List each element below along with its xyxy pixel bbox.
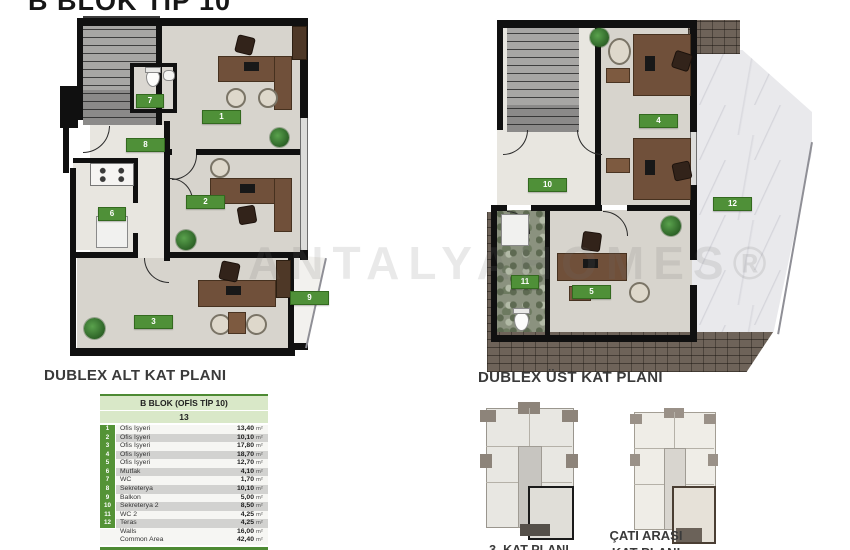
mini-roof xyxy=(566,454,578,468)
room-label-3: 3 xyxy=(134,315,173,329)
mini-roof xyxy=(480,410,496,422)
plant-icon xyxy=(84,318,105,339)
wall xyxy=(133,233,138,255)
wall xyxy=(627,205,693,211)
room-label-8: 8 xyxy=(126,138,165,152)
area-table-row: 8Sekreterya10,10m² xyxy=(100,485,268,494)
room-label-2: 2 xyxy=(186,195,225,209)
wall xyxy=(690,20,697,132)
mini-roof xyxy=(562,410,578,422)
plant-icon xyxy=(661,216,681,236)
room-label-7: 7 xyxy=(136,94,164,108)
area-table-row: 7WC1,70m² xyxy=(100,476,268,485)
stairs-icon xyxy=(507,28,579,105)
desk-return xyxy=(274,178,292,232)
wall xyxy=(60,86,78,128)
plant-icon xyxy=(590,28,609,47)
mini-roof xyxy=(630,454,640,466)
area-table-unit-no: 13 xyxy=(100,411,268,425)
area-table-rows: 1Ofis İşyeri13,40m²2Ofis İşyeri10,10m²3O… xyxy=(100,425,268,545)
area-table-row: Common Area42,40m² xyxy=(100,536,268,545)
wall xyxy=(491,335,697,342)
stove-icon xyxy=(90,163,134,186)
row-area: 42,40 xyxy=(222,536,254,545)
page-title: B BLOK TIP 10 xyxy=(28,0,231,17)
sink-icon xyxy=(163,70,175,81)
lower-floorplan: 1 2 3 6 7 8 9 xyxy=(60,18,325,368)
guest-chair-icon xyxy=(226,88,246,108)
mini-plan-attic-caption-line2: KAT PLANI xyxy=(606,545,686,550)
wall xyxy=(196,149,308,155)
row-unit: m² xyxy=(254,536,268,545)
mini-wall xyxy=(674,412,675,448)
mini-plan-attic xyxy=(630,408,718,548)
room-label-9: 9 xyxy=(290,291,329,305)
guest-chair-icon xyxy=(608,38,631,65)
lower-plan-caption: DUBLEX ALT KAT PLANI xyxy=(44,367,226,384)
monitor-icon xyxy=(244,62,259,71)
wall xyxy=(497,20,503,130)
window-strip xyxy=(300,118,308,253)
area-table-row: 12Teras4,25m² xyxy=(100,519,268,528)
room-label-10: 10 xyxy=(528,178,567,192)
wall xyxy=(531,205,602,211)
area-table-row: 1Ofis İşyeri13,40m² xyxy=(100,425,268,434)
area-table-row: Walls16,00m² xyxy=(100,528,268,537)
row-no xyxy=(100,528,116,537)
monitor-icon xyxy=(645,56,655,71)
side-table-icon xyxy=(606,158,630,173)
area-table-row: 3Ofis İşyeri17,80m² xyxy=(100,442,268,451)
area-table-row: 6Mutfak4,10m² xyxy=(100,468,268,477)
upper-floorplan: 4 5 10 11 12 xyxy=(487,20,812,372)
row-no xyxy=(100,536,116,545)
guest-chair-icon xyxy=(258,88,278,108)
monitor-icon xyxy=(645,160,655,175)
row-name: Walls xyxy=(116,528,222,537)
mini-roof xyxy=(630,414,642,424)
mini-plan-floor3 xyxy=(480,402,578,538)
wall xyxy=(77,18,308,26)
room-label-6: 6 xyxy=(98,207,126,221)
area-table-row: 4Ofis İşyeri18,70m² xyxy=(100,451,268,460)
room-label-12: 12 xyxy=(713,197,752,211)
chair-icon xyxy=(237,205,258,226)
floorplan-page: B BLOK TIP 10 xyxy=(0,0,850,550)
monitor-icon xyxy=(226,286,241,295)
area-table-row: 10Sekreterya 28,50m² xyxy=(100,502,268,511)
chair-icon xyxy=(218,260,241,283)
stairs-landing xyxy=(507,105,579,132)
mini-roof xyxy=(704,414,716,424)
room-label-4: 4 xyxy=(639,114,678,128)
guest-chair-icon xyxy=(246,314,267,335)
row-unit: m² xyxy=(254,528,268,537)
area-table: B BLOK (OFİS TİP 10) 13 1Ofis İşyeri13,4… xyxy=(100,394,268,550)
mini-roof xyxy=(708,454,718,466)
area-table-title: B BLOK (OFİS TİP 10) xyxy=(100,394,268,411)
guest-chair-icon xyxy=(210,158,230,178)
side-table-icon xyxy=(228,312,246,334)
wall xyxy=(70,168,76,356)
toilet-tank xyxy=(145,67,161,73)
mini-roof xyxy=(480,454,492,468)
area-table-row: 11WC 24,25m² xyxy=(100,511,268,520)
upper-plan-caption: DUBLEX ÜST KAT PLANI xyxy=(478,369,663,386)
mini-plan-floor3-caption: 3. KAT PLANI xyxy=(480,543,578,550)
plant-icon xyxy=(176,230,196,250)
watermark: ANTALYAHOMES® xyxy=(248,236,850,290)
wall xyxy=(491,205,507,211)
plant-icon xyxy=(270,128,289,147)
cabinet-icon xyxy=(292,26,307,60)
mini-roof-dark xyxy=(520,524,550,536)
room-label-1: 1 xyxy=(202,110,241,124)
wall xyxy=(70,348,295,356)
toilet-tank xyxy=(513,308,530,314)
mini-plan-attic-caption-line1: ÇATI ARASI xyxy=(606,528,686,543)
area-table-row: 9Balkon5,00m² xyxy=(100,494,268,503)
wall xyxy=(690,285,697,340)
wall xyxy=(595,20,601,208)
wall xyxy=(63,123,69,173)
row-name: Common Area xyxy=(116,536,222,545)
wall xyxy=(70,252,138,258)
wall xyxy=(164,149,172,155)
mini-wall xyxy=(529,408,530,446)
side-table-icon xyxy=(606,68,630,83)
monitor-icon xyxy=(240,184,255,193)
area-table-row: 5Ofis İşyeri12,70m² xyxy=(100,459,268,468)
chair-icon xyxy=(671,160,692,181)
area-table-row: 2Ofis İşyeri10,10m² xyxy=(100,434,268,443)
row-area: 16,00 xyxy=(222,528,254,537)
